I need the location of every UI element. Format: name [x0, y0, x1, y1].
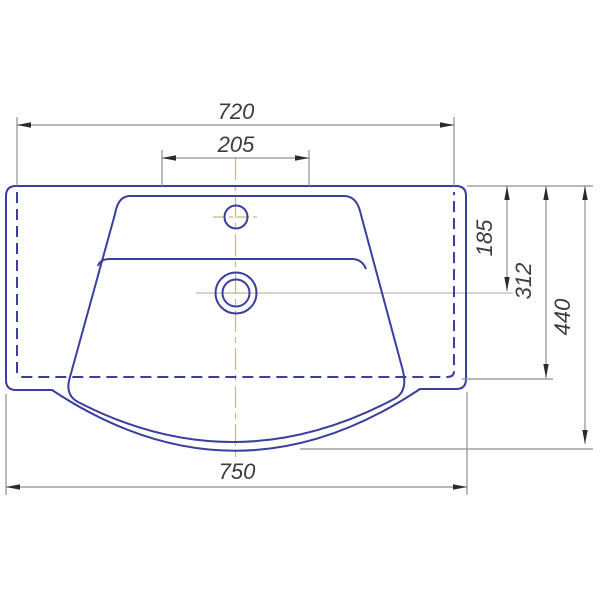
arrow-312-bottom: [543, 364, 548, 378]
arrow-205-left: [162, 155, 176, 160]
dimension-labels: 720 205 185 312 440 750: [217, 99, 575, 484]
arrow-720-left: [17, 122, 31, 127]
arrow-205-right: [295, 155, 309, 160]
label-440: 440: [550, 298, 575, 335]
basin-ledge-line: [98, 259, 366, 269]
arrow-185-bottom: [504, 277, 509, 291]
dimension-lines: [6, 117, 593, 495]
label-205: 205: [217, 132, 255, 157]
arrow-440-top: [582, 186, 587, 200]
arrow-312-top: [543, 186, 548, 200]
arrow-720-right: [440, 122, 454, 127]
basin-outline: [68, 196, 404, 442]
label-720: 720: [218, 99, 255, 124]
label-185: 185: [472, 219, 497, 256]
drawing-canvas: 720 205 185 312 440 750: [0, 0, 600, 600]
arrow-750-left: [6, 484, 20, 489]
washbasin-drawing: 720 205 185 312 440 750: [0, 0, 600, 600]
arrow-185-top: [504, 186, 509, 200]
arrow-440-bottom: [582, 430, 587, 444]
label-312: 312: [511, 263, 536, 300]
arrow-750-right: [453, 484, 467, 489]
label-750: 750: [219, 459, 256, 484]
